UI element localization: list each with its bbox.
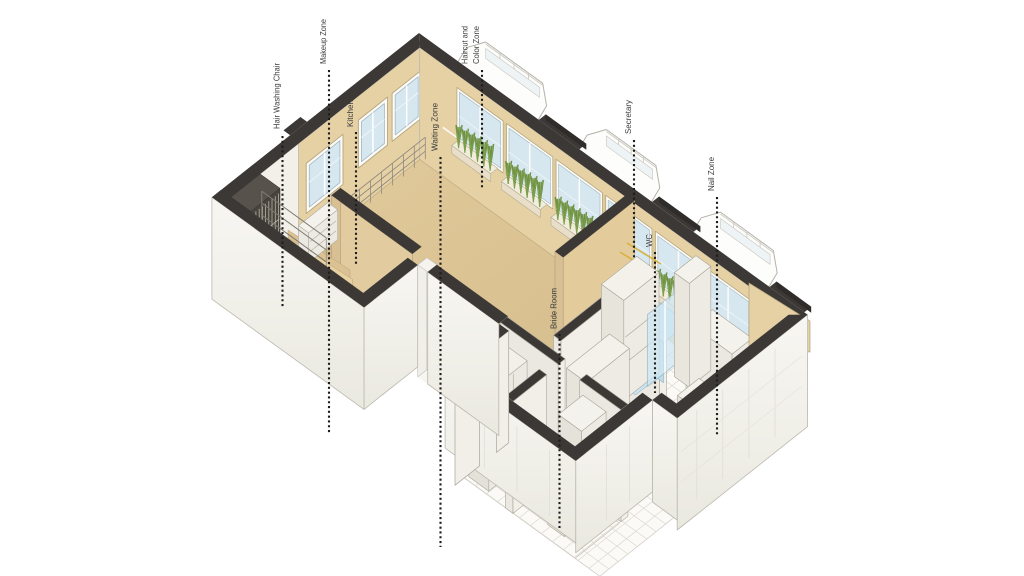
svg-text:Nail Zone: Nail Zone bbox=[706, 157, 716, 191]
svg-text:Kitchen: Kitchen bbox=[345, 100, 355, 127]
svg-text:Makeup Zone: Makeup Zone bbox=[318, 19, 328, 64]
svg-text:Bride Room: Bride Room bbox=[549, 288, 559, 329]
svg-text:Waiting Zone: Waiting Zone bbox=[430, 103, 440, 151]
svg-text:Color Zone: Color Zone bbox=[471, 26, 481, 64]
svg-text:Secretary: Secretary bbox=[623, 99, 633, 134]
svg-text:Haircut and: Haircut and bbox=[460, 26, 470, 64]
svg-text:WC: WC bbox=[644, 234, 654, 247]
svg-text:Hair Washing Chair: Hair Washing Chair bbox=[272, 63, 282, 129]
